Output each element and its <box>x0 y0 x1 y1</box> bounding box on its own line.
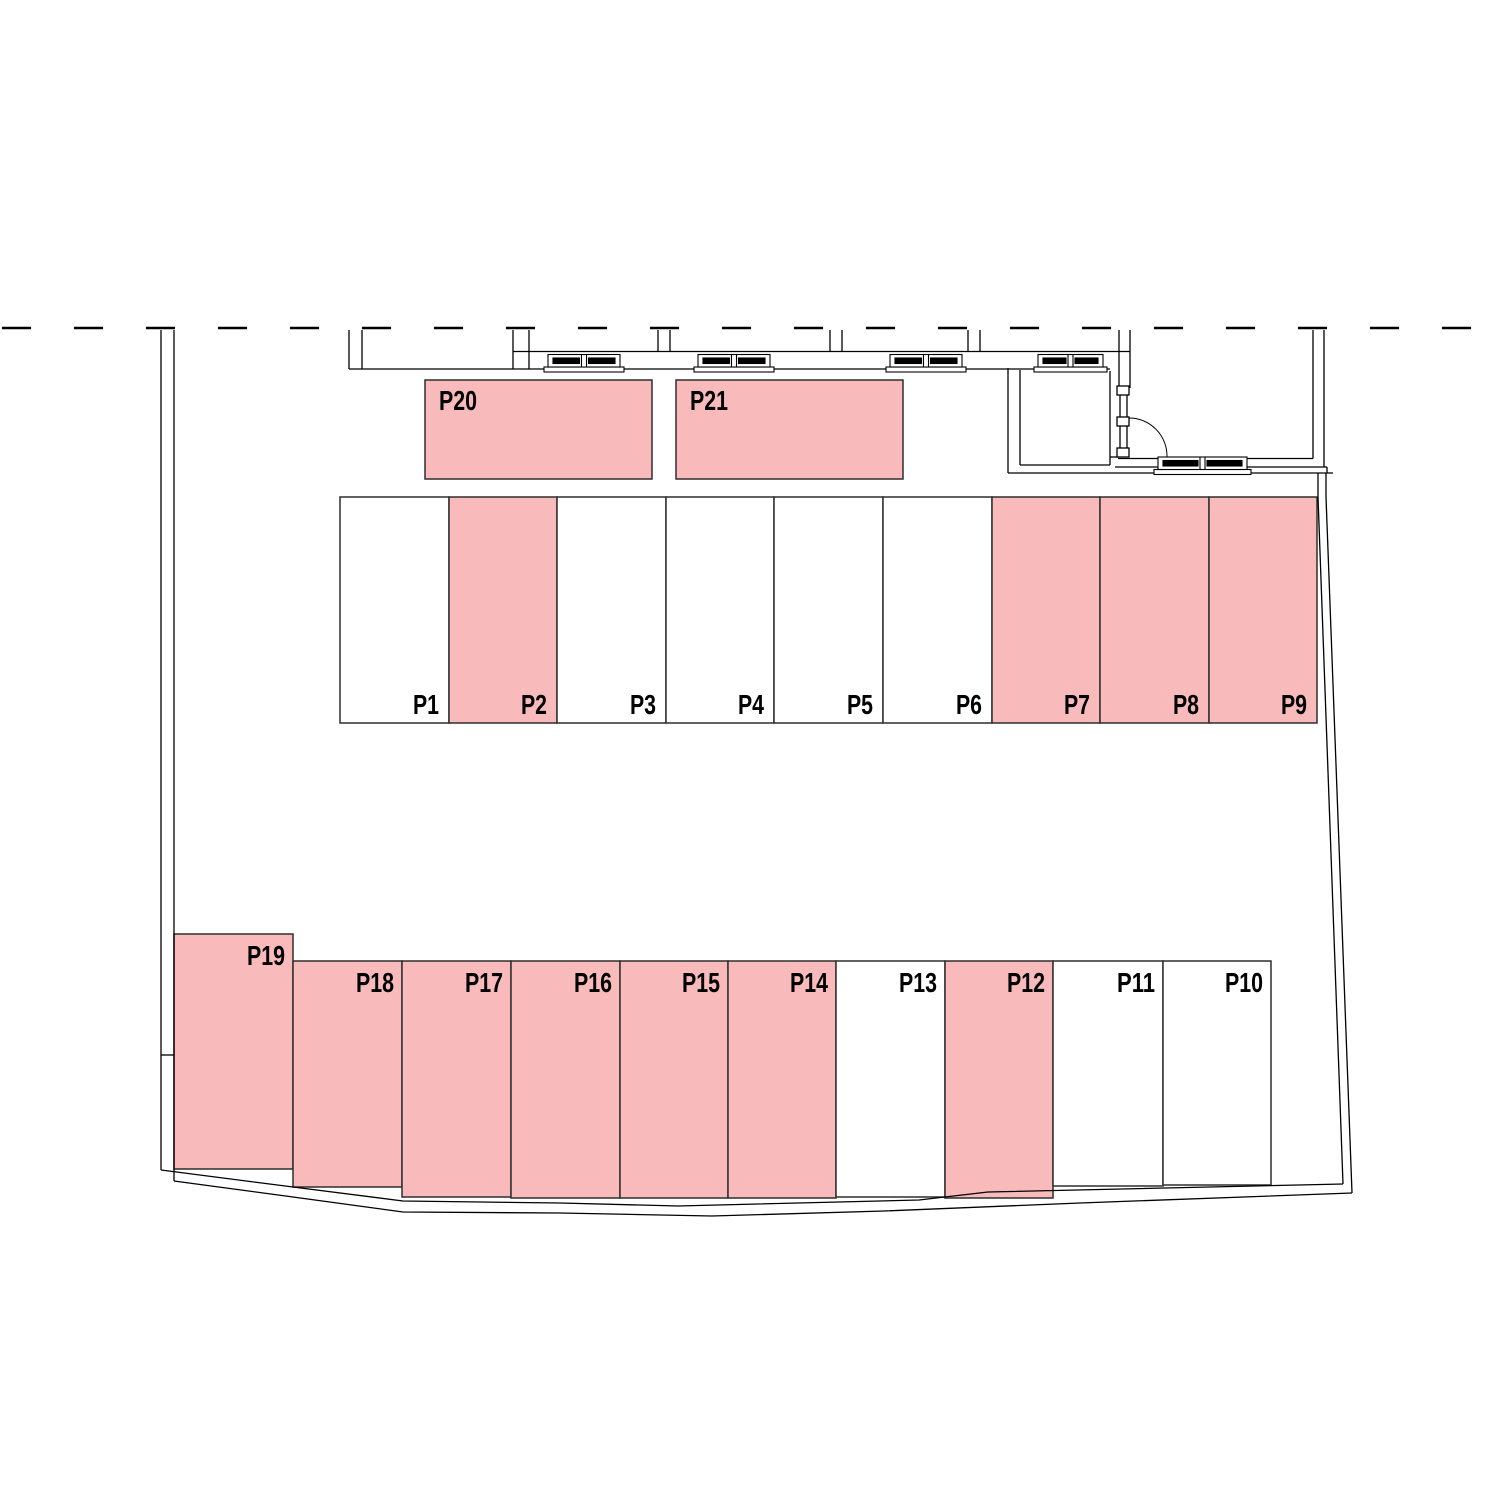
parking-stall-P17: P17 <box>402 961 511 1197</box>
stall-label-P6: P6 <box>956 689 982 720</box>
parking-stall-P4: P4 <box>666 497 774 723</box>
stall-label-P20: P20 <box>439 385 477 416</box>
stall-label-P13: P13 <box>899 967 937 998</box>
parking-site-plan: P1P2P3P4P5P6P7P8P9P20P21P19P18P17P16P15P… <box>0 0 1500 1500</box>
parking-stall-P20: P20 <box>425 380 652 479</box>
stall-label-P11: P11 <box>1117 967 1155 998</box>
parking-stall-P5: P5 <box>774 497 883 723</box>
stall-label-P10: P10 <box>1225 967 1263 998</box>
parking-stall-P18: P18 <box>293 961 402 1187</box>
parking-stall-P3: P3 <box>557 497 666 723</box>
window <box>694 355 774 373</box>
plan-svg: P1P2P3P4P5P6P7P8P9P20P21P19P18P17P16P15P… <box>0 0 1500 1500</box>
parking-stall-P6: P6 <box>883 497 992 723</box>
parking-stall-P19: P19 <box>174 934 293 1169</box>
window <box>886 355 966 373</box>
parking-stall-P10: P10 <box>1163 961 1271 1185</box>
stall-label-P2: P2 <box>521 689 547 720</box>
stall-label-P15: P15 <box>682 967 720 998</box>
window <box>1154 457 1251 475</box>
window <box>544 355 624 373</box>
stall-label-P5: P5 <box>847 689 873 720</box>
stall-label-P12: P12 <box>1007 967 1045 998</box>
parking-stall-P13: P13 <box>836 961 945 1197</box>
stall-label-P17: P17 <box>465 967 503 998</box>
parking-stall-P9: P9 <box>1209 497 1317 723</box>
parking-stalls-layer: P1P2P3P4P5P6P7P8P9P20P21P19P18P17P16P15P… <box>174 380 1317 1198</box>
parking-stall-P1: P1 <box>340 497 449 723</box>
stall-label-P1: P1 <box>413 689 439 720</box>
parking-stall-P16: P16 <box>511 961 620 1198</box>
window <box>1034 355 1107 373</box>
parking-stall-P8: P8 <box>1100 497 1209 723</box>
parking-stall-P2: P2 <box>449 497 557 723</box>
stall-label-P9: P9 <box>1281 689 1307 720</box>
parking-stall-P11: P11 <box>1053 961 1163 1186</box>
stall-label-P21: P21 <box>690 385 728 416</box>
stall-label-P18: P18 <box>356 967 394 998</box>
parking-stall-P14: P14 <box>728 961 836 1198</box>
parking-stall-P12: P12 <box>945 961 1053 1198</box>
stall-label-P19: P19 <box>247 940 285 971</box>
stall-label-P14: P14 <box>790 967 828 998</box>
stall-label-P8: P8 <box>1173 689 1199 720</box>
door-swing-arc <box>1129 418 1167 457</box>
stall-label-P16: P16 <box>574 967 612 998</box>
parking-stall-P15: P15 <box>620 961 728 1198</box>
stall-label-P3: P3 <box>630 689 656 720</box>
parking-stall-P7: P7 <box>992 497 1100 723</box>
parking-stall-P21: P21 <box>676 380 903 479</box>
stall-label-P7: P7 <box>1064 689 1090 720</box>
stall-label-P4: P4 <box>738 689 764 720</box>
